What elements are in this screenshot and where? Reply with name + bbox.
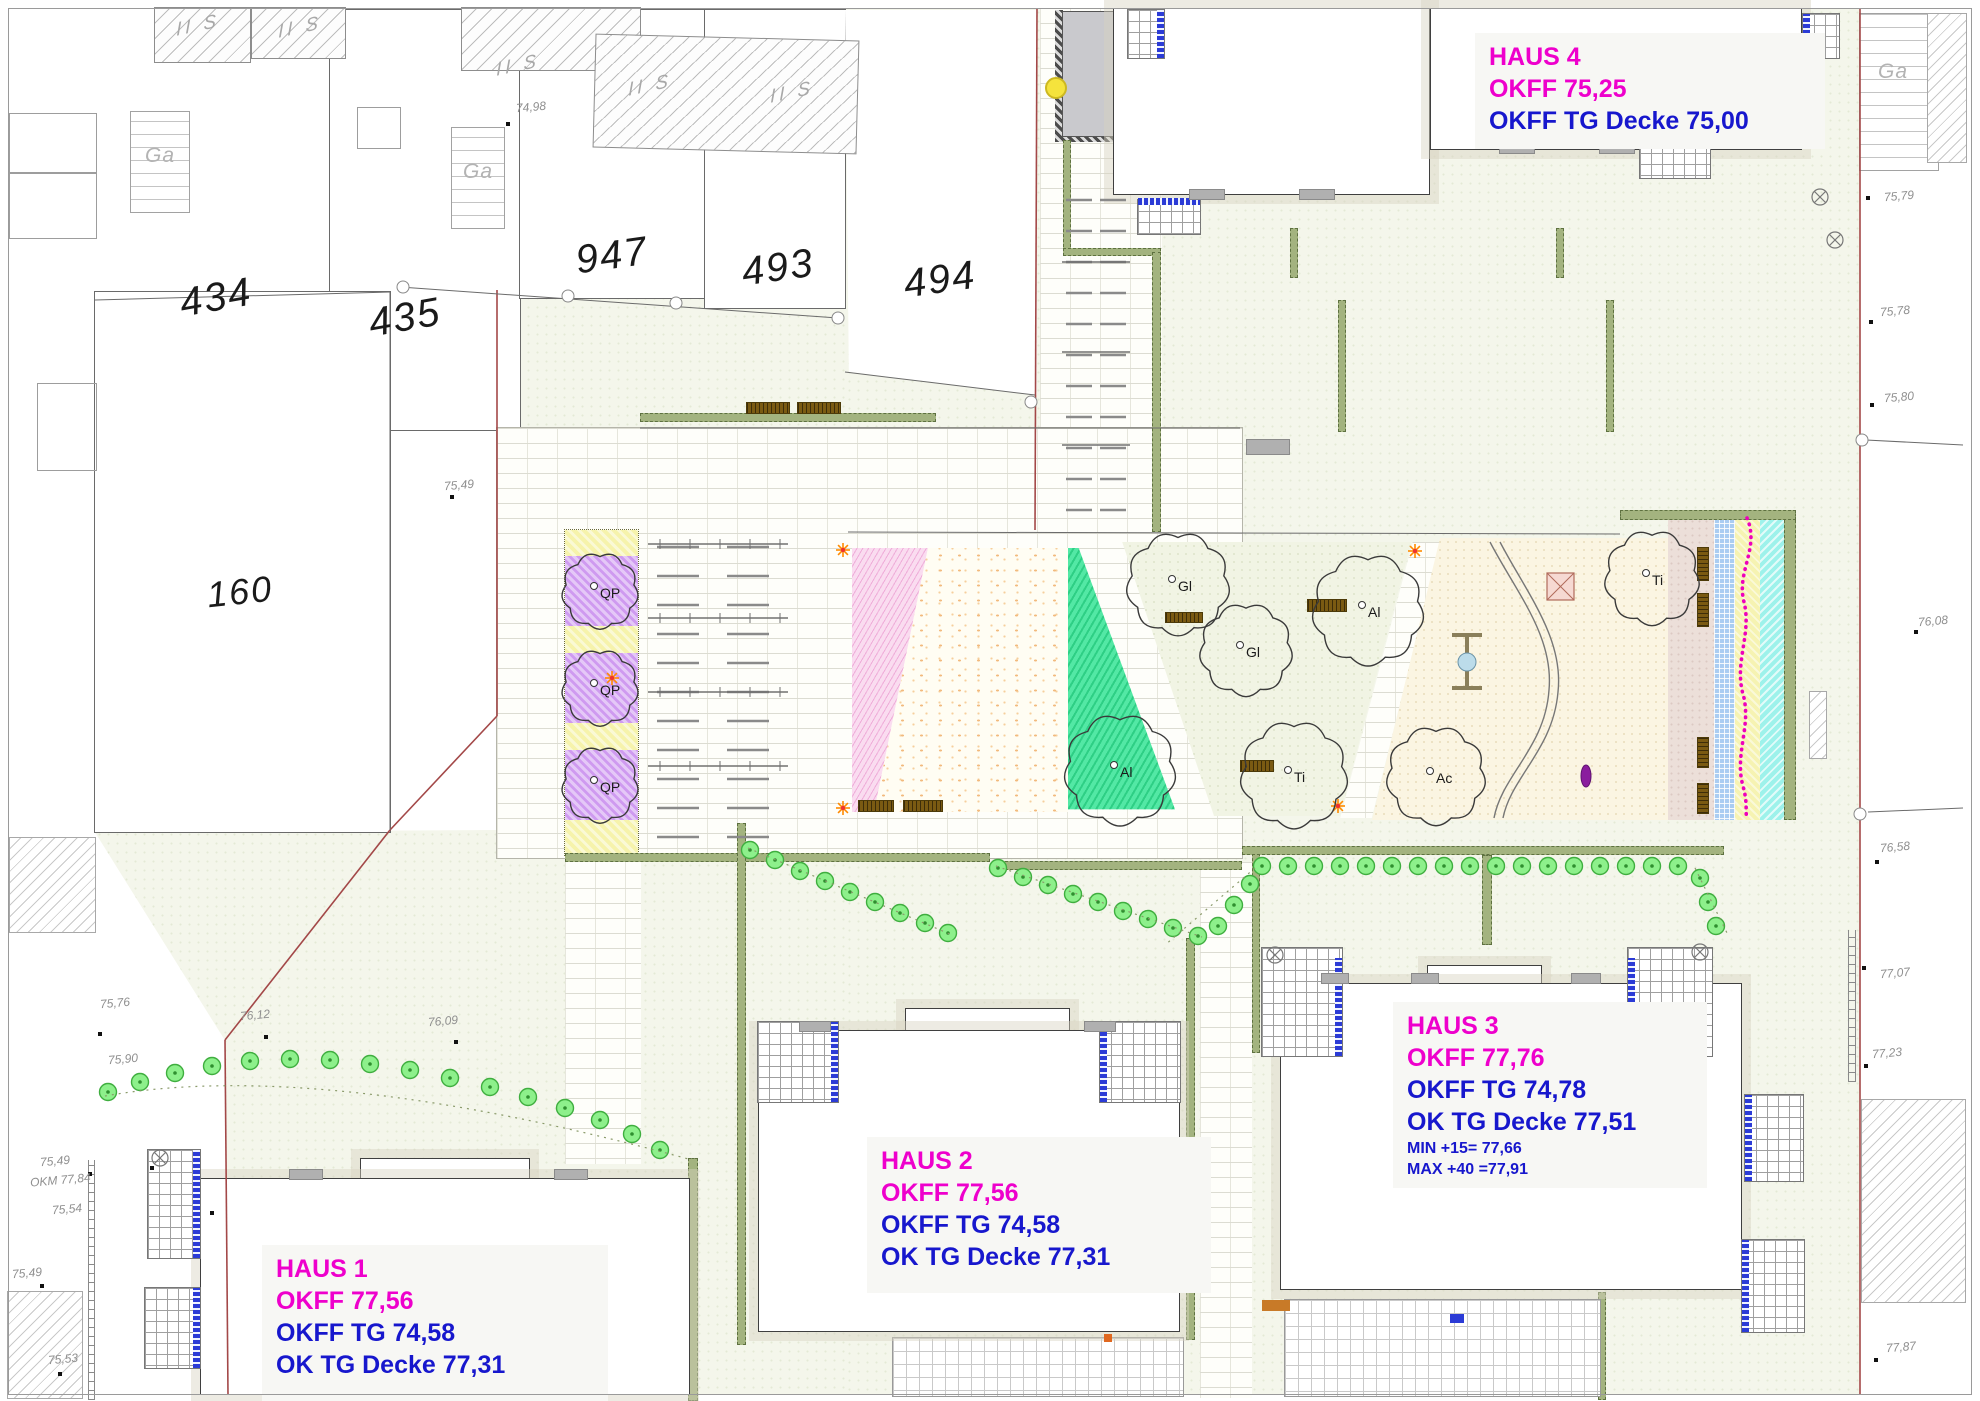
house-label-row: OK TG Decke 77,51	[1407, 1106, 1693, 1138]
hedge	[1152, 252, 1161, 532]
parcel-160	[95, 292, 390, 832]
terrace	[1745, 1095, 1803, 1181]
sand-strip	[1735, 518, 1760, 820]
fence-line	[1848, 930, 1856, 1082]
spot-elevation: 75,76	[99, 995, 130, 1012]
bench	[746, 402, 790, 414]
terrace-edge	[831, 1022, 838, 1102]
house-label-row: OK TG Decke 77,31	[881, 1241, 1197, 1273]
elevation-dot	[1866, 196, 1870, 200]
shed-outline	[38, 384, 96, 470]
spot-elevation: 75,90	[107, 1051, 138, 1068]
parcel-494	[845, 10, 1037, 395]
terrace	[145, 1288, 200, 1368]
wall-hatch	[1055, 10, 1063, 142]
house-label-row: OKFF TG Decke 75,00	[1489, 105, 1811, 137]
garage-roof-hatch	[1928, 14, 1966, 162]
hedge	[1063, 140, 1071, 252]
hedge	[995, 861, 1242, 870]
house-label-row: OKFF TG 74,58	[276, 1317, 594, 1349]
garage-label: Ga	[1878, 60, 1908, 84]
hedge	[1482, 855, 1492, 945]
hedge	[1242, 846, 1724, 855]
terrace-edge	[1157, 10, 1164, 58]
orange-bench	[1262, 1300, 1290, 1311]
water-play-strip	[1714, 518, 1735, 820]
door-sill	[1572, 974, 1600, 983]
hedge	[737, 823, 746, 1345]
house-label-row: OKFF 77,76	[1407, 1042, 1693, 1074]
spot-elevation: OKM 77,84	[30, 1170, 92, 1189]
patio	[1285, 1300, 1600, 1396]
terrace-edge	[193, 1288, 200, 1368]
path-south	[565, 858, 641, 1164]
elevation-dot	[1862, 966, 1866, 970]
house-label-haus-2: HAUS 2OKFF 77,56OKFF TG 74,58OK TG Decke…	[867, 1137, 1211, 1293]
terrace	[1742, 1240, 1804, 1332]
spot-elevation: 76,09	[427, 1013, 458, 1030]
cyan-strip	[1760, 518, 1784, 820]
bench	[1697, 593, 1709, 627]
hatch-bar	[1810, 692, 1826, 758]
spot-elevation: 77,87	[1885, 1339, 1916, 1356]
garage-label: Ga	[463, 160, 493, 184]
spot-elevation: 76,58	[1879, 839, 1910, 856]
site-plan: QPQPQPGlGlAlTiAcAlTi 434435947493494160G…	[0, 0, 1980, 1401]
cadastre-line	[1866, 440, 1963, 445]
blue-marker	[1450, 1314, 1464, 1323]
bush-symbol	[167, 1065, 184, 1082]
bush-symbol	[204, 1058, 221, 1075]
hedge	[1620, 510, 1796, 520]
hedge	[640, 413, 936, 422]
hedge	[1063, 248, 1161, 256]
elevation-dot	[1869, 320, 1873, 324]
elevation-dot	[98, 1032, 102, 1036]
elevation-dot	[40, 1284, 44, 1288]
bush-symbol	[132, 1074, 149, 1091]
house-label-row: MAX +40 =77,91	[1407, 1159, 1693, 1180]
spot-elevation: 75,79	[1883, 188, 1914, 205]
garage-ramp-building	[1063, 12, 1115, 136]
spot-elevation: 75,49	[39, 1153, 70, 1170]
tree-pit	[565, 653, 638, 723]
house-label-haus-1: HAUS 1OKFF 77,56OKFF TG 74,58OK TG Decke…	[262, 1245, 608, 1401]
spot-elevation: 74,98	[515, 99, 546, 116]
house-label-row: OKFF 77,56	[276, 1285, 594, 1317]
house-label-row: OK TG Decke 77,31	[276, 1349, 594, 1381]
house-label-row: OKFF TG 74,78	[1407, 1074, 1693, 1106]
bench	[1697, 547, 1709, 581]
terrace	[1100, 1022, 1180, 1102]
elevation-dot	[1914, 630, 1918, 634]
house-label-haus-4: HAUS 4OKFF 75,25OKFF TG Decke 75,00	[1475, 33, 1825, 149]
spot-elevation: 75,54	[51, 1201, 82, 1218]
spot-elevation: 77,23	[1871, 1045, 1902, 1062]
house-label-row: HAUS 3	[1407, 1010, 1693, 1042]
door-sill	[1085, 1022, 1115, 1031]
road-hatch	[10, 838, 95, 932]
shed-outline	[10, 114, 96, 172]
bench	[1697, 783, 1709, 814]
bench	[1697, 737, 1709, 768]
path-haus2-haus3	[1200, 862, 1252, 1398]
terrace	[1262, 948, 1342, 1056]
bench	[1307, 599, 1347, 612]
house-label-haus-3: HAUS 3OKFF 77,76OKFF TG 74,78OK TG Decke…	[1393, 1002, 1707, 1188]
terrace-edge	[1335, 958, 1342, 1056]
spot-elevation: 76,12	[239, 1007, 270, 1024]
tree-pit	[565, 750, 638, 820]
spot-elevation: 75,49	[443, 477, 474, 494]
elevation-dot	[1864, 1064, 1868, 1068]
door-sill	[555, 1170, 587, 1179]
house-label-row: HAUS 4	[1489, 41, 1811, 73]
bench	[1165, 612, 1203, 623]
house-label-row: OKFF 75,25	[1489, 73, 1811, 105]
spot-elevation: 76,08	[1917, 613, 1948, 630]
door-sill	[1412, 974, 1438, 983]
terrace-edge	[1138, 198, 1200, 205]
spot-elevation: 75,53	[47, 1351, 78, 1368]
bench-gray	[1247, 440, 1289, 454]
boundary-line	[390, 716, 497, 830]
garage-label: Ga	[145, 144, 175, 168]
bench	[797, 402, 841, 414]
terrace-edge	[1100, 1022, 1107, 1102]
house-label-row: OKFF 77,56	[881, 1177, 1197, 1209]
terrace	[1138, 200, 1200, 234]
cadastre-line	[1868, 808, 1963, 812]
elevation-dot	[1875, 860, 1879, 864]
house-label-row: MIN +15= 77,66	[1407, 1138, 1693, 1159]
house-label-row: HAUS 1	[276, 1253, 594, 1285]
parcel-strip-hatch	[1862, 1100, 1965, 1302]
elevation-dot	[1870, 403, 1874, 407]
hedge	[1338, 300, 1346, 432]
elevation-dot	[450, 495, 454, 499]
door-sill	[1190, 190, 1224, 199]
hedge	[1290, 228, 1298, 278]
hedge	[1606, 300, 1614, 432]
shed-outline	[10, 174, 96, 238]
bench	[903, 800, 943, 812]
door-sill	[1300, 190, 1334, 199]
bush-symbol	[100, 1084, 117, 1101]
patio	[893, 1338, 1183, 1396]
door-sill	[1322, 974, 1348, 983]
spot-elevation: 75,78	[1879, 303, 1910, 320]
bench	[858, 800, 894, 812]
house-label-row: HAUS 2	[881, 1145, 1197, 1177]
parcel-number: 160	[205, 568, 275, 617]
terrace-edge	[1742, 1240, 1749, 1332]
terrace-edge	[1745, 1095, 1752, 1181]
hedge	[1556, 228, 1564, 278]
bench	[1240, 760, 1274, 772]
terrace	[758, 1022, 838, 1102]
shed-outline	[358, 108, 400, 148]
spot-elevation: 75,80	[1883, 389, 1914, 406]
road-hatch	[8, 1292, 82, 1398]
hedge	[565, 853, 990, 862]
house-label-row: OKFF TG 74,58	[881, 1209, 1197, 1241]
door-sill	[800, 1022, 830, 1031]
hedge	[1252, 848, 1260, 1053]
tree-pit	[565, 556, 638, 626]
hedge	[1784, 515, 1796, 820]
door-sill	[290, 1170, 322, 1179]
orange-dot	[1104, 1334, 1112, 1342]
spot-elevation: 77,07	[1879, 965, 1910, 982]
terrace-edge	[193, 1150, 200, 1258]
spot-elevation: 75,49	[11, 1265, 42, 1282]
elevation-dot	[1874, 1358, 1878, 1362]
garage-building	[1860, 14, 1938, 170]
fence-line	[88, 1160, 95, 1400]
